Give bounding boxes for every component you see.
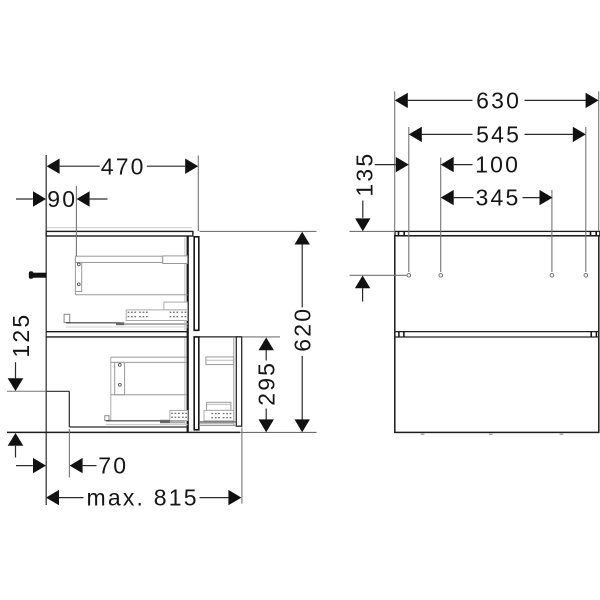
svg-text:345: 345 (476, 185, 521, 211)
svg-text:max. 815: max. 815 (87, 485, 199, 511)
svg-text:470: 470 (101, 153, 146, 179)
svg-text:125: 125 (8, 313, 34, 358)
svg-text:620: 620 (290, 307, 316, 352)
svg-text:135: 135 (351, 152, 377, 197)
svg-text:545: 545 (476, 121, 521, 147)
svg-text:295: 295 (253, 361, 279, 406)
svg-text:70: 70 (98, 453, 128, 479)
svg-text:90: 90 (47, 186, 77, 212)
svg-text:100: 100 (475, 152, 520, 178)
svg-text:630: 630 (476, 87, 521, 113)
